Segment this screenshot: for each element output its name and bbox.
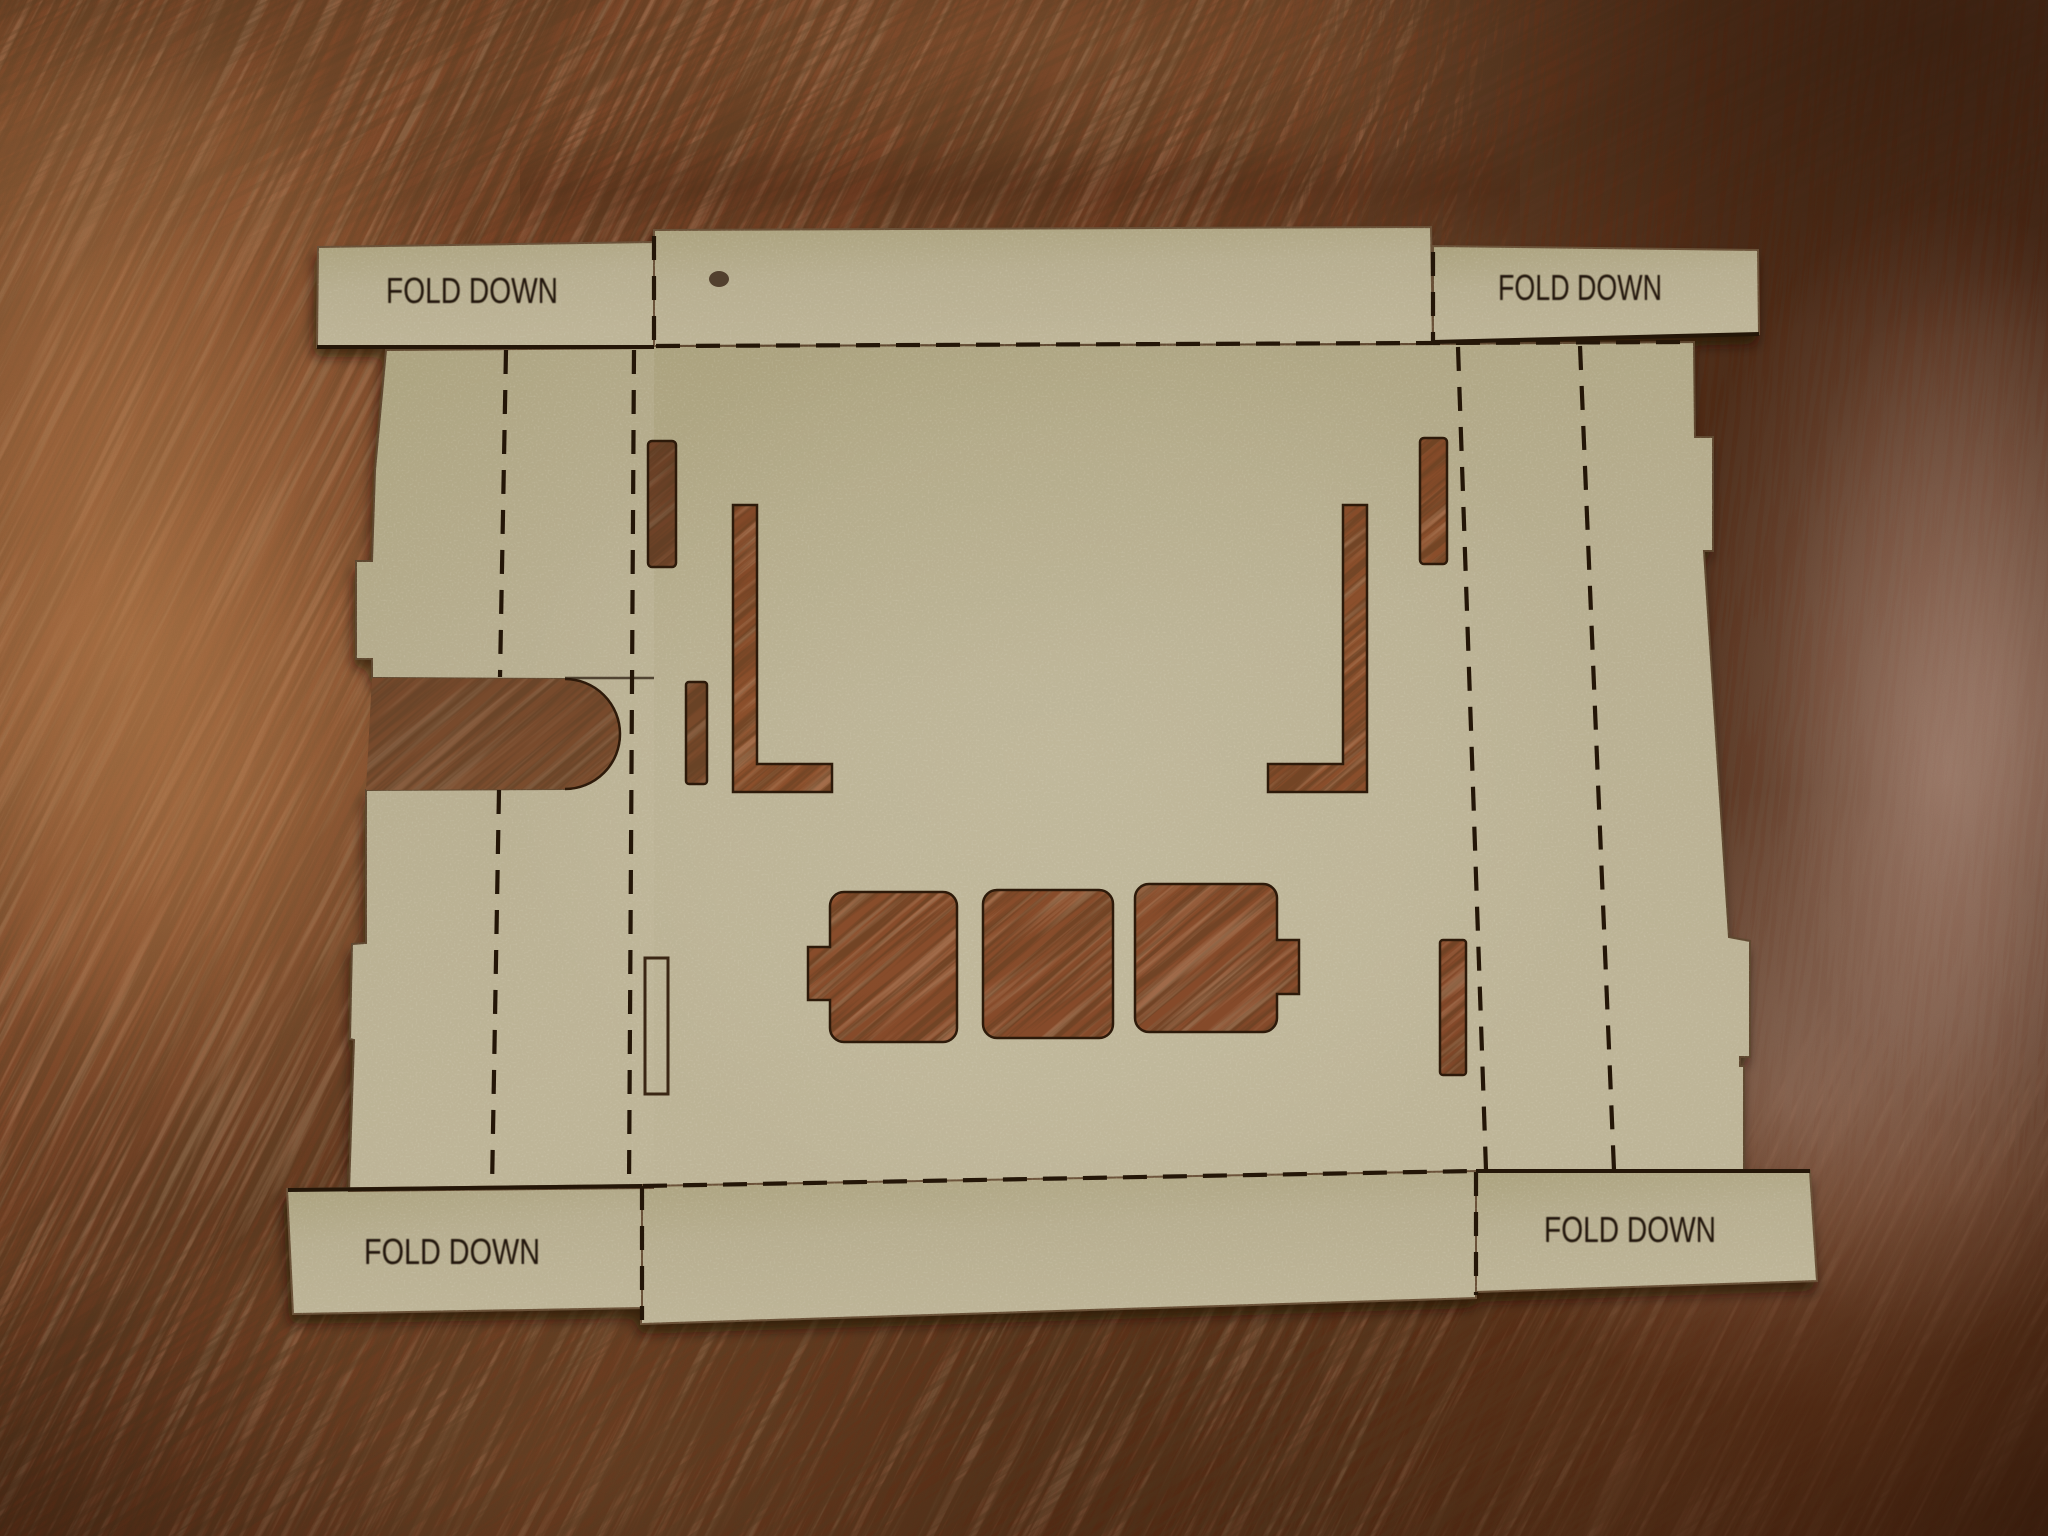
svg-text:FOLD DOWN: FOLD DOWN [1544, 1209, 1716, 1250]
svg-text:FOLD DOWN: FOLD DOWN [386, 270, 558, 311]
svg-text:FOLD DOWN: FOLD DOWN [364, 1231, 540, 1272]
svg-text:FOLD DOWN: FOLD DOWN [1498, 267, 1662, 308]
